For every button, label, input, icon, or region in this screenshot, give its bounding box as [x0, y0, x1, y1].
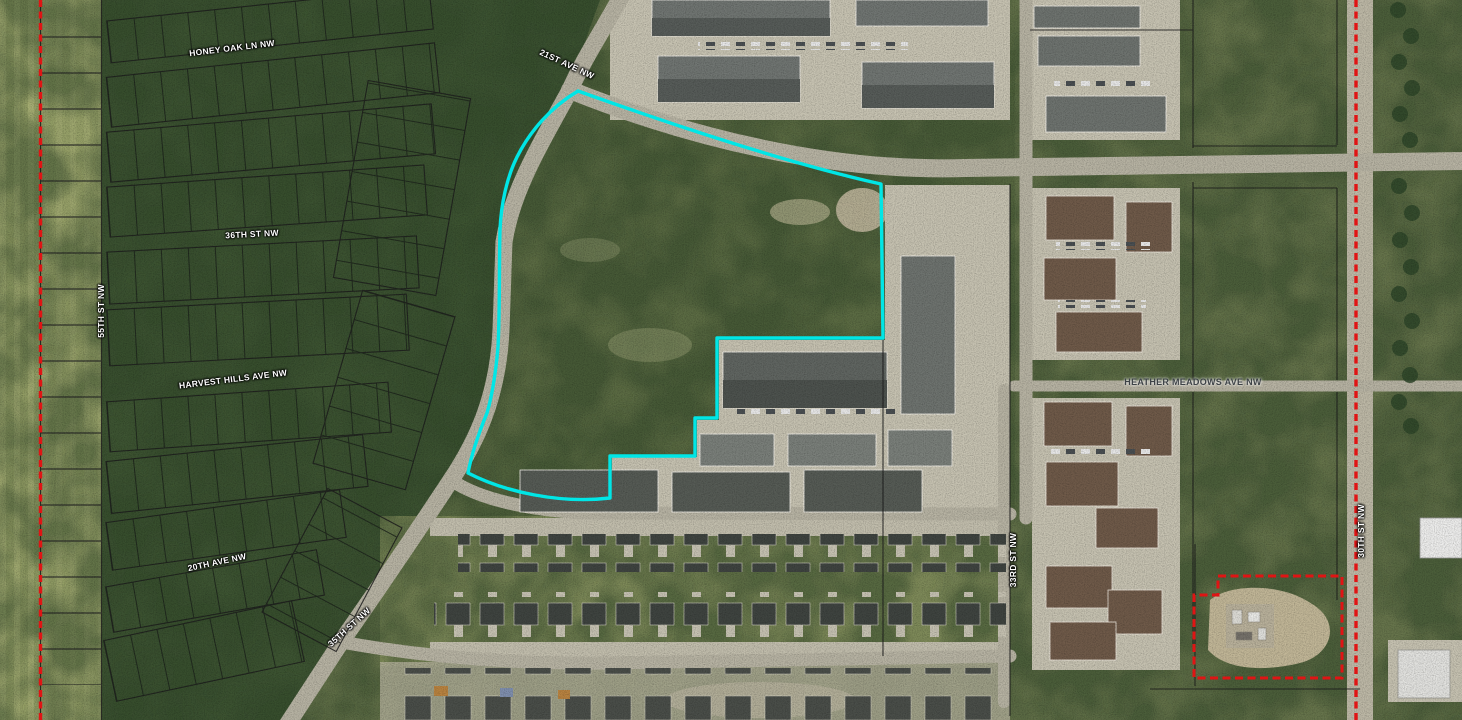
- street-label-33rd-st-nw: 33RD ST NW: [1008, 533, 1018, 587]
- street-label-30th-st-nw: 30TH ST NW: [1356, 504, 1366, 558]
- image-grain-overlay: [0, 0, 1462, 720]
- parcel-map-canvas: [0, 0, 1462, 720]
- street-label-55th-st-nw: 55TH ST NW: [96, 284, 106, 338]
- aerial-map-viewport[interactable]: HONEY OAK LN NW 36TH ST NW 55TH ST NW HA…: [0, 0, 1462, 720]
- street-label-heather-meadows-ave-nw: HEATHER MEADOWS AVE NW: [1124, 377, 1261, 387]
